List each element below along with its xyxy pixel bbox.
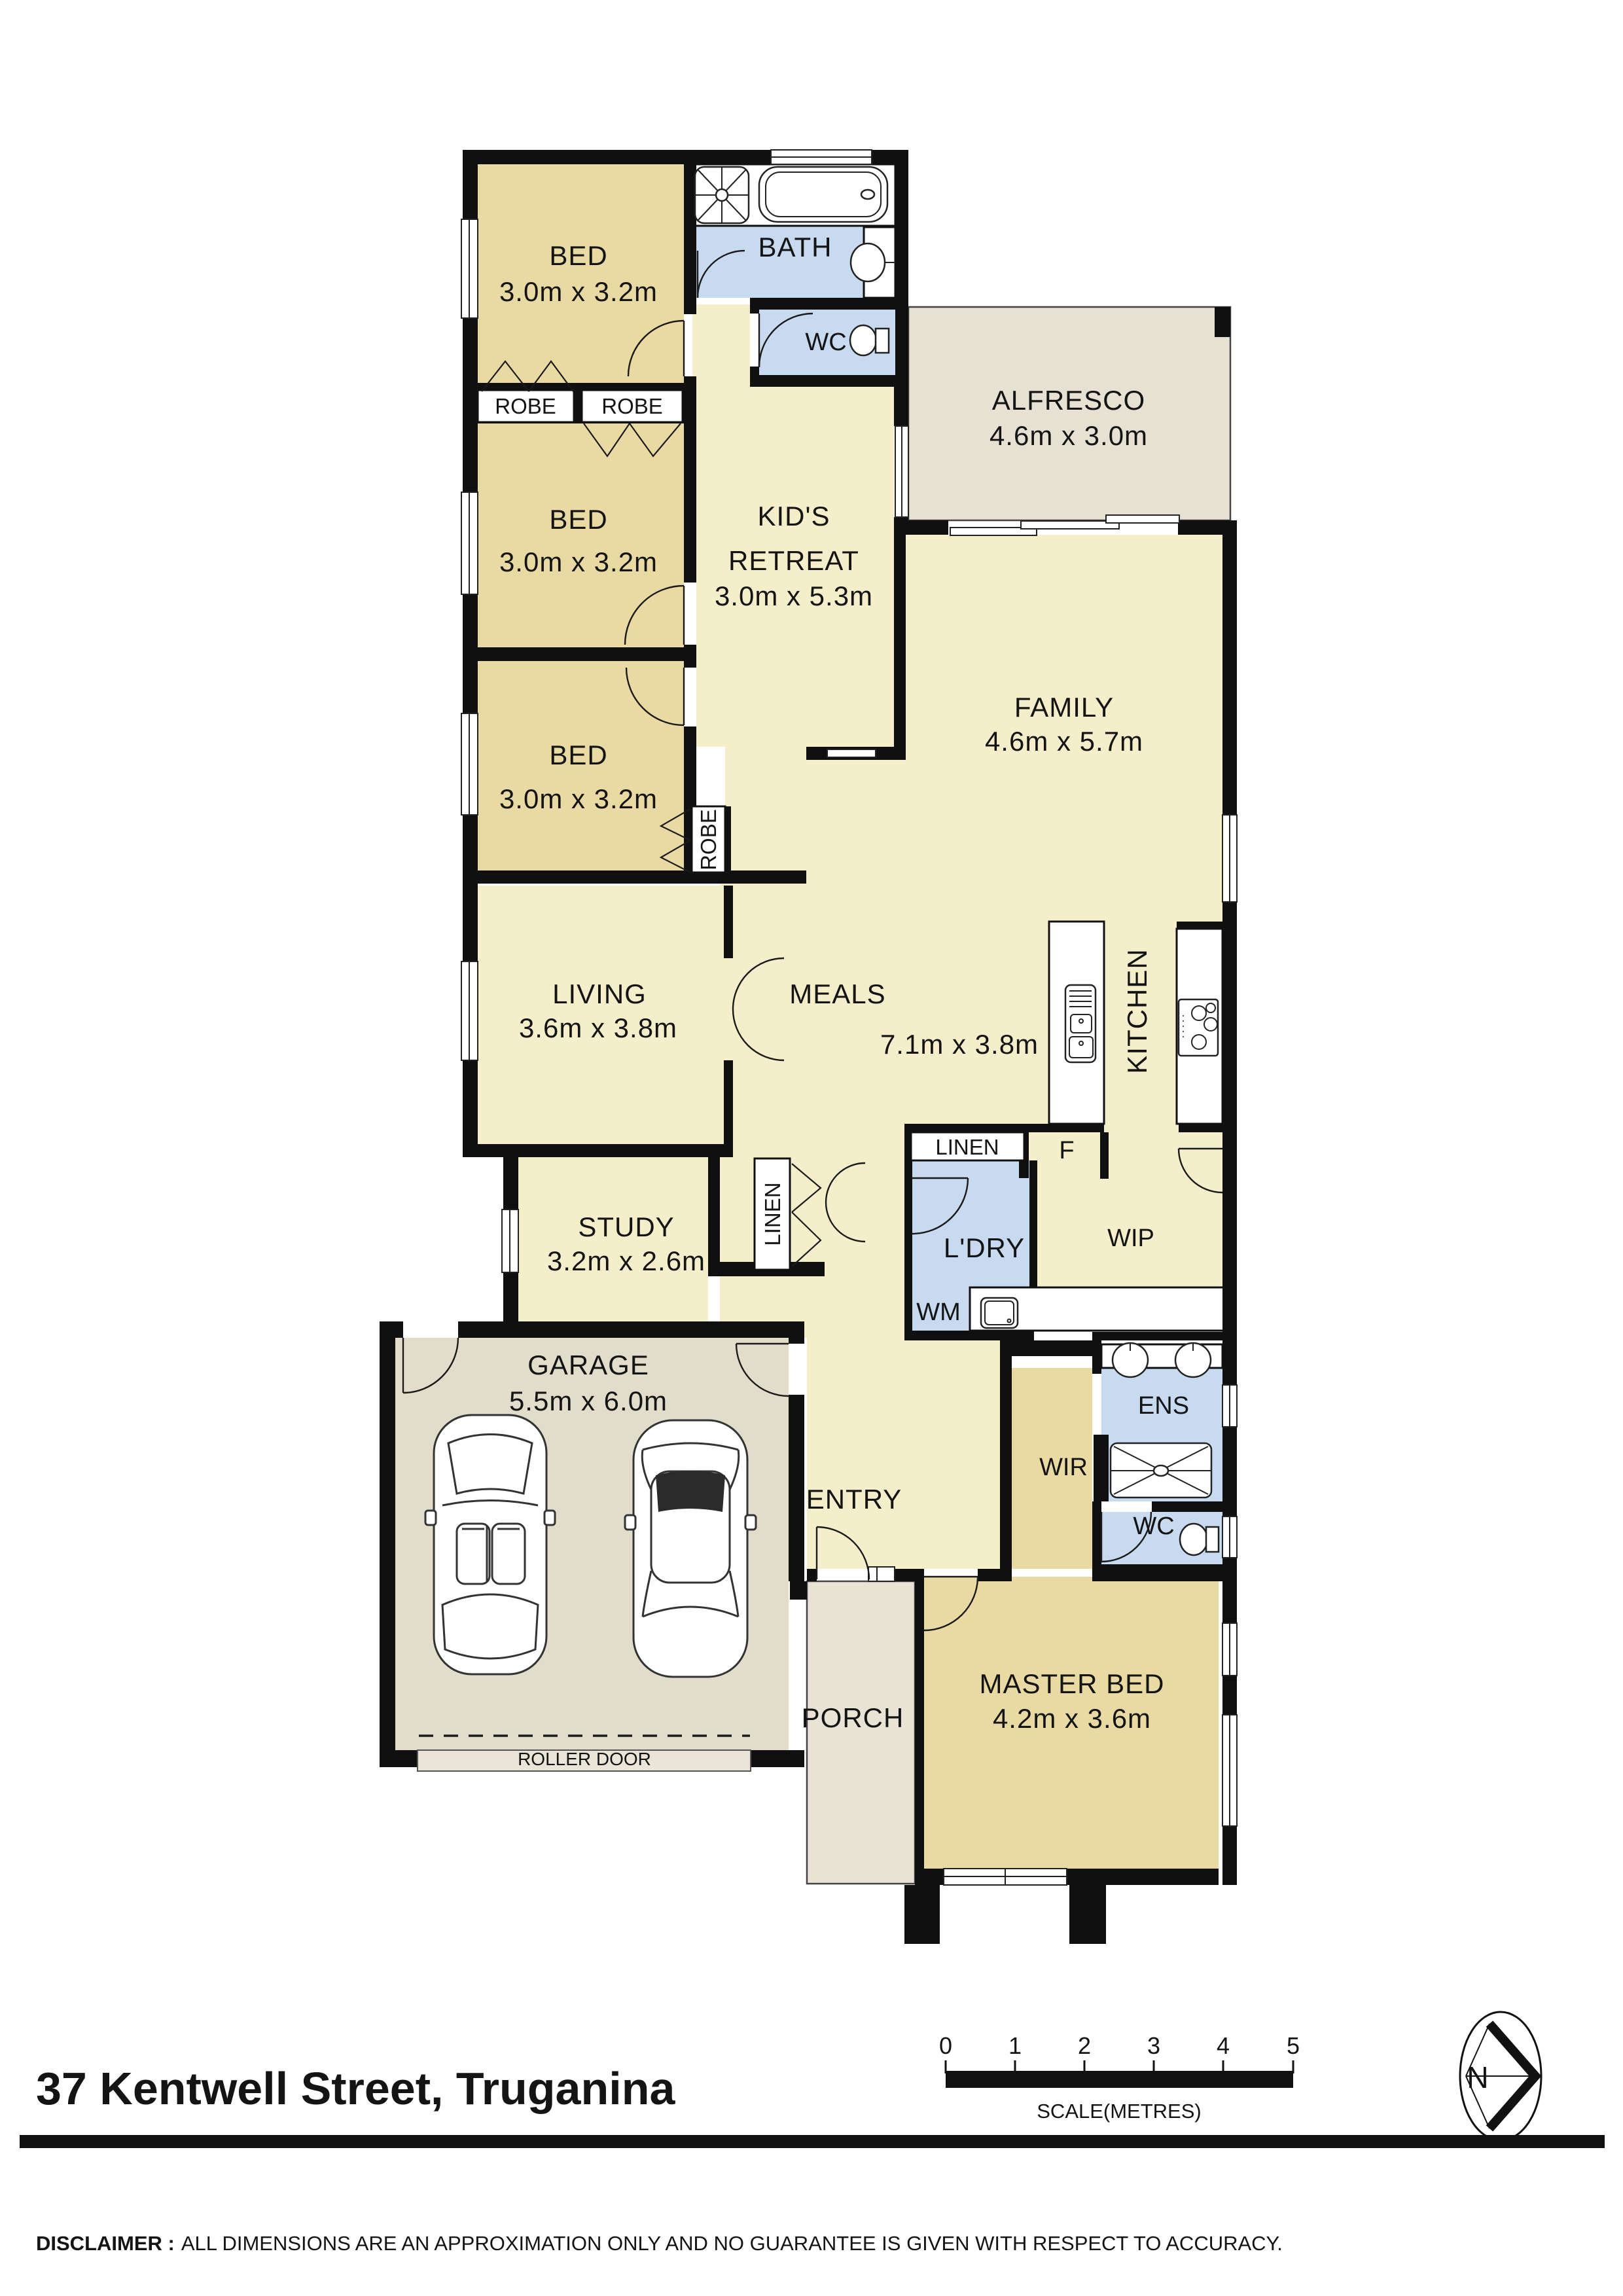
window-bed2 — [461, 492, 478, 594]
north-label: N — [1467, 2060, 1488, 2094]
room-study-dims: 3.2m x 2.6m — [547, 1246, 705, 1276]
scale-tick-0: 0 — [939, 2032, 952, 2059]
linen-kitchen-box: LINEN — [911, 1132, 1024, 1160]
window-master-1 — [1222, 1623, 1237, 1676]
shower-fixture-ens — [1111, 1443, 1211, 1498]
room-alfresco-label: ALFRESCO — [992, 385, 1145, 416]
room-bed2-dims: 3.0m x 3.2m — [499, 547, 658, 577]
window-kids-alfresco — [895, 426, 908, 517]
room-bed3-label: BED — [549, 740, 607, 770]
toilet-fixture-wc-main — [850, 325, 889, 355]
window-master-2 — [1222, 1715, 1237, 1826]
room-master-label: MASTER BED — [979, 1668, 1164, 1699]
robe-2-box: ROBE — [582, 390, 683, 422]
room-family-label: FAMILY — [1014, 692, 1114, 723]
room-wip-label: WIP — [1107, 1225, 1154, 1252]
robe-1-label: ROBE — [495, 394, 556, 418]
floor-hall-top — [692, 304, 750, 396]
scale-tick-2: 2 — [1078, 2032, 1091, 2059]
car-convertible — [425, 1415, 555, 1674]
window-wc-ens — [1222, 1516, 1237, 1558]
scale-bar: 0 1 2 3 4 5 SCALE(METRES) — [939, 2032, 1300, 2123]
toilet-fixture-wc-ens — [1180, 1524, 1219, 1555]
window-top-bath — [771, 150, 872, 164]
scale-bar-rect — [946, 2071, 1293, 2088]
robe-2-label: ROBE — [601, 394, 663, 418]
floor-plan-page: ROBE ROBE ROBE LINEN LINEN — [0, 0, 1623, 2296]
robe-3-label: ROBE — [696, 809, 721, 870]
floor-entry — [807, 1338, 1000, 1569]
washing-machine-fixture — [981, 1298, 1018, 1328]
room-garage-label: GARAGE — [527, 1350, 649, 1380]
room-bed2-label: BED — [549, 504, 607, 535]
disclaimer-bold: DISCLAIMER : — [36, 2232, 175, 2255]
room-meals-label: MEALS — [789, 978, 885, 1009]
room-master-dims: 4.2m x 3.6m — [993, 1703, 1151, 1734]
roller-door-label: ROLLER DOOR — [518, 1749, 651, 1769]
room-entry-label: ENTRY — [806, 1484, 902, 1515]
window-ens — [1222, 1385, 1237, 1427]
linen-hall-box: LINEN — [755, 1158, 790, 1270]
room-bed1-label: BED — [549, 240, 607, 271]
scale-caption: SCALE(METRES) — [1037, 2100, 1201, 2123]
north-arrow: N — [1460, 2012, 1541, 2140]
linen-kitchen-label: LINEN — [935, 1135, 999, 1159]
shower-fixture-bath — [695, 167, 749, 223]
room-alfresco-dims: 4.6m x 3.0m — [990, 420, 1148, 451]
window-master-front — [944, 1869, 1067, 1885]
robe-3-box: ROBE — [692, 806, 725, 872]
room-kids-dims: 3.0m x 5.3m — [715, 581, 873, 611]
disclaimer: DISCLAIMER :ALL DIMENSIONS ARE AN APPROX… — [36, 2232, 1283, 2255]
kitchen-island-sink — [1065, 985, 1096, 1062]
page-title: 37 Kentwell Street, Truganina — [36, 2063, 675, 2114]
fridge-label: F — [1059, 1137, 1074, 1164]
room-kids-label2: RETREAT — [728, 545, 859, 576]
room-garage-dims: 5.5m x 6.0m — [509, 1386, 668, 1416]
room-living-label: LIVING — [552, 978, 647, 1009]
window-study — [502, 1210, 518, 1272]
room-wc-ens-label: WC — [1133, 1513, 1174, 1540]
footer-divider — [20, 2135, 1605, 2148]
room-bed1-dims: 3.0m x 3.2m — [499, 276, 658, 307]
scale-tick-4: 4 — [1217, 2032, 1230, 2059]
window-family — [1222, 815, 1237, 902]
room-wc-main-label: WC — [805, 329, 846, 356]
wm-label: WM — [916, 1299, 961, 1326]
room-family-dims: 4.6m x 5.7m — [985, 726, 1143, 757]
window-bed1 — [461, 219, 478, 318]
scale-tick-5: 5 — [1287, 2032, 1300, 2059]
scale-tick-3: 3 — [1147, 2032, 1160, 2059]
room-living-dims: 3.6m x 3.8m — [519, 1013, 677, 1043]
car-sedan — [625, 1420, 756, 1677]
room-ens-label: ENS — [1138, 1392, 1189, 1420]
linen-hall-label: LINEN — [760, 1182, 785, 1246]
room-porch-label: PORCH — [802, 1702, 904, 1733]
sliding-door-kids — [827, 749, 876, 757]
robe-1-box: ROBE — [478, 390, 574, 422]
bathtub-fixture — [759, 167, 887, 222]
floor-bed-1 — [478, 164, 684, 383]
cooktop-fixture — [1179, 999, 1218, 1056]
floor-plan-drawing: ROBE ROBE ROBE LINEN LINEN — [0, 0, 1623, 2296]
room-study-label: STUDY — [578, 1211, 674, 1242]
scale-tick-1: 1 — [1008, 2032, 1022, 2059]
room-meals-dims: 7.1m x 3.8m — [880, 1029, 1039, 1060]
room-bath-label: BATH — [758, 232, 832, 262]
room-laundry-label: L'DRY — [944, 1232, 1025, 1263]
room-bed3-dims: 3.0m x 3.2m — [499, 783, 658, 814]
window-bed3 — [461, 713, 478, 815]
window-living — [461, 961, 478, 1060]
room-wir-label: WIR — [1039, 1454, 1088, 1481]
room-kids-label1: KID'S — [757, 501, 830, 531]
room-kitchen-label: KITCHEN — [1122, 948, 1152, 1073]
floor-kids-corridor — [725, 747, 906, 884]
front-door-threshold — [868, 1567, 895, 1581]
floor-wip — [1024, 1132, 1222, 1287]
disclaimer-text: ALL DIMENSIONS ARE AN APPROXIMATION ONLY… — [181, 2232, 1283, 2255]
